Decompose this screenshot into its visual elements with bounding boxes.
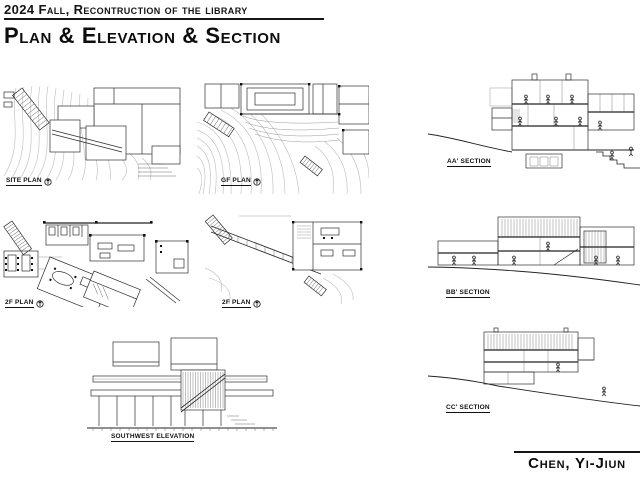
- site-plan-graphic: [2, 84, 182, 180]
- section-cc-figure: CC' SECTION: [428, 326, 640, 414]
- floor2-plan-b-graphic: [205, 212, 370, 304]
- presentation-sheet: 2024 Fall, Recontruction of the library …: [0, 0, 640, 480]
- southwest-elevation-label: SOUTHWEST ELEVATION: [111, 433, 194, 442]
- sheet-header: 2024 Fall, Recontruction of the library …: [4, 2, 324, 49]
- section-aa-figure: AA' SECTION: [428, 72, 640, 172]
- page-title: Plan & Elevation & Section: [4, 23, 324, 49]
- course-title: 2024 Fall, Recontruction of the library: [4, 2, 324, 20]
- gf-plan-figure: GF PLAN: [197, 82, 369, 194]
- section-aa-graphic: [428, 72, 640, 172]
- floor2-plan-b-label: 2F PLAN: [222, 299, 251, 308]
- section-cc-label: CC' SECTION: [446, 404, 490, 413]
- author-name: Chen, Yi-Jiun: [514, 455, 640, 472]
- section-bb-figure: BB' SECTION: [428, 203, 640, 297]
- sheet-footer: Chen, Yi-Jiun: [514, 451, 640, 472]
- southwest-elevation-figure: SOUTHWEST ELEVATION: [85, 336, 281, 444]
- section-bb-graphic: [428, 203, 640, 297]
- floor2-plan-a-label: 2F PLAN: [5, 299, 34, 308]
- section-aa-label: AA' SECTION: [447, 158, 491, 167]
- section-bb-label: BB' SECTION: [446, 289, 490, 298]
- section-aa-caption: AA' SECTION: [447, 158, 491, 167]
- floor2-plan-b-figure: 2F PLAN: [205, 212, 370, 307]
- north-arrow-icon: [253, 300, 261, 308]
- gf-plan-caption: GF PLAN: [221, 177, 261, 186]
- site-plan-figure: SITE PLAN: [2, 84, 182, 186]
- section-bb-caption: BB' SECTION: [446, 289, 490, 298]
- floor2-plan-a-graphic: [0, 207, 200, 307]
- floor2-plan-a-caption: 2F PLAN: [5, 299, 44, 308]
- site-plan-label: SITE PLAN: [6, 177, 42, 186]
- southwest-elevation-caption: SOUTHWEST ELEVATION: [111, 433, 194, 442]
- north-arrow-icon: [36, 300, 44, 308]
- north-arrow-icon: [253, 178, 261, 186]
- site-plan-caption: SITE PLAN: [6, 177, 52, 186]
- north-arrow-icon: [44, 178, 52, 186]
- gf-plan-label: GF PLAN: [221, 177, 251, 186]
- section-cc-graphic: [428, 326, 640, 414]
- section-cc-caption: CC' SECTION: [446, 404, 490, 413]
- floor2-plan-b-caption: 2F PLAN: [222, 299, 261, 308]
- floor2-plan-a-figure: 2F PLAN: [0, 207, 200, 307]
- southwest-elevation-graphic: [85, 336, 281, 444]
